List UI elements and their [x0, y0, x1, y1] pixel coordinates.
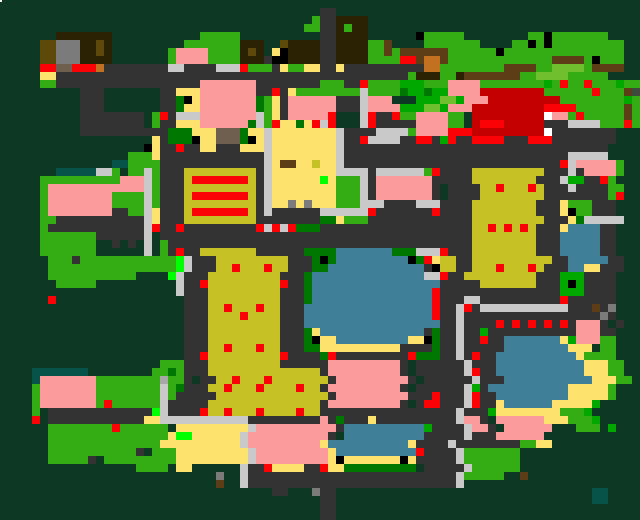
pixel-map-canvas[interactable]: [0, 0, 640, 520]
game-map-view: [0, 0, 640, 520]
